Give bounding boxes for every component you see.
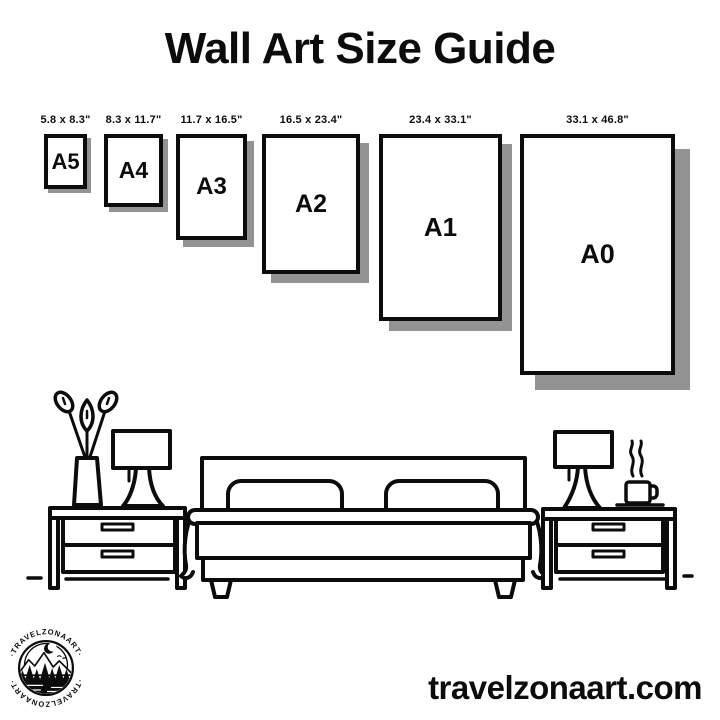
size-name-label: A0 bbox=[580, 239, 615, 270]
size-name-label: A5 bbox=[51, 149, 79, 175]
bed-base bbox=[203, 558, 523, 580]
website-url: travelzonaart.com bbox=[428, 669, 702, 707]
size-dimensions-label: 5.8 x 8.3" bbox=[40, 113, 90, 129]
logo-scene bbox=[15, 640, 76, 695]
size-dimensions-label: 8.3 x 11.7" bbox=[106, 113, 162, 129]
size-card-a3: 11.7 x 16.5" A3 bbox=[176, 113, 247, 240]
size-dimensions-label: 16.5 x 23.4" bbox=[280, 113, 343, 129]
table-lamp-icon bbox=[113, 431, 170, 506]
plant-vase-icon bbox=[52, 389, 121, 505]
bed-foot bbox=[211, 580, 231, 597]
size-name-label: A4 bbox=[119, 157, 148, 184]
size-dimensions-label: 33.1 x 46.8" bbox=[566, 113, 629, 129]
double-bed-icon bbox=[181, 458, 545, 597]
coffee-cup-icon bbox=[617, 441, 663, 505]
size-card-a5: 5.8 x 8.3" A5 bbox=[44, 113, 87, 189]
mattress bbox=[197, 523, 530, 558]
paper-sheet-a4: A4 bbox=[104, 134, 163, 207]
size-name-label: A3 bbox=[196, 173, 227, 201]
size-card-a2: 16.5 x 23.4" A2 bbox=[262, 113, 360, 274]
paper-sheet-a5: A5 bbox=[44, 134, 87, 189]
size-card-a4: 8.3 x 11.7" A4 bbox=[104, 113, 163, 207]
table-lamp-icon bbox=[555, 432, 612, 508]
size-card-a1: 23.4 x 33.1" A1 bbox=[379, 113, 502, 321]
size-card-a0: 33.1 x 46.8" A0 bbox=[520, 113, 675, 375]
paper-sheet-a2: A2 bbox=[262, 134, 360, 274]
paper-sheet-a0: A0 bbox=[520, 134, 675, 375]
page-title: Wall Art Size Guide bbox=[0, 24, 720, 74]
bed-foot bbox=[495, 580, 515, 597]
logo-badge: ·TRAVELZONAART· ·TRAVELZONAART· bbox=[0, 621, 92, 713]
nightstand-icon bbox=[543, 509, 675, 588]
paper-sheet-a3: A3 bbox=[176, 134, 247, 240]
size-name-label: A2 bbox=[295, 190, 327, 219]
size-name-label: A1 bbox=[424, 212, 457, 243]
size-dimensions-label: 11.7 x 16.5" bbox=[180, 113, 242, 129]
nightstand-icon bbox=[50, 508, 185, 588]
paper-sheet-a1: A1 bbox=[379, 134, 502, 321]
size-dimensions-label: 23.4 x 33.1" bbox=[409, 113, 472, 129]
bedroom-illustration bbox=[0, 385, 720, 605]
